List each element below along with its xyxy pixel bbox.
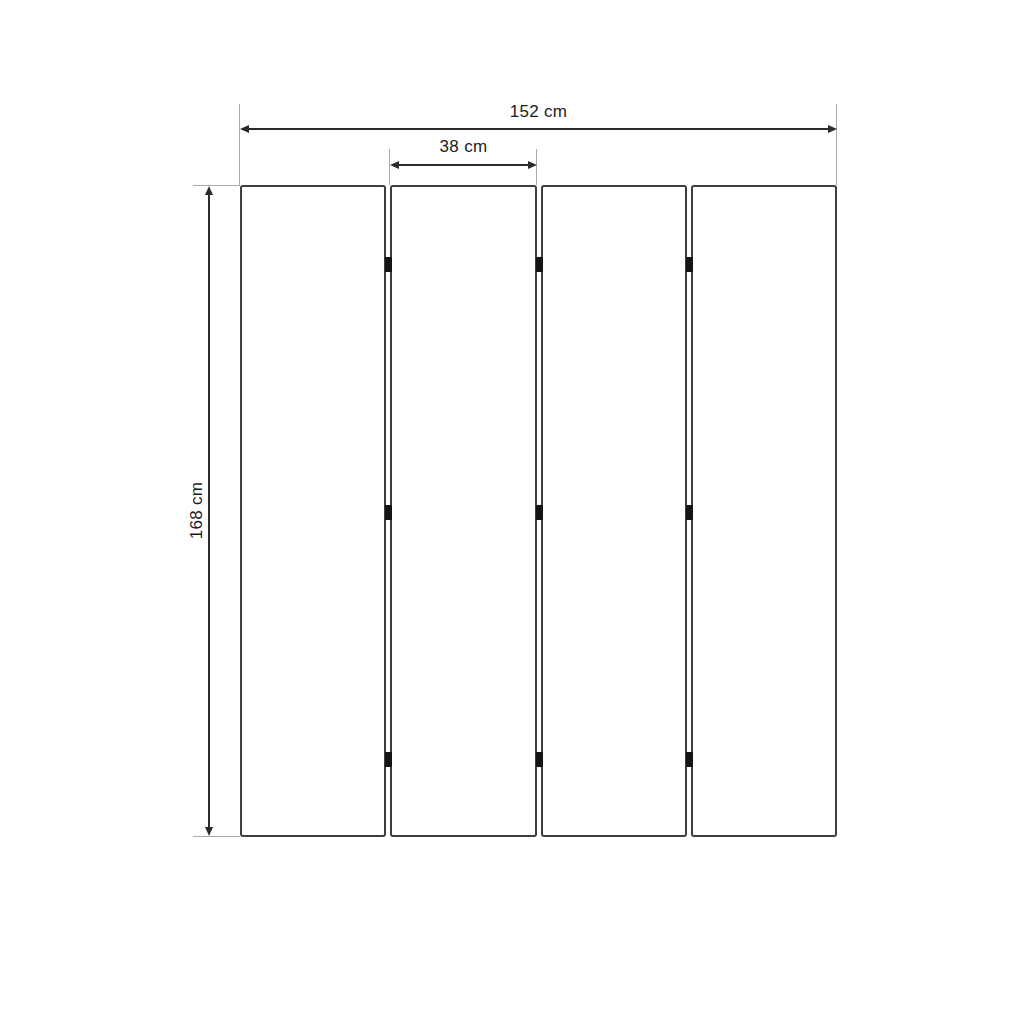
arrowhead-panel-left-icon [390, 161, 399, 169]
extension-line-height-bottom [193, 836, 240, 837]
hinge-gap3-middle [686, 505, 693, 520]
hinge-gap1-bottom [385, 752, 392, 767]
extension-line-height-top [193, 185, 240, 186]
dimension-line-total-width [248, 128, 829, 130]
arrowhead-total-right-icon [828, 125, 837, 133]
dimension-line-height [208, 194, 210, 827]
hinge-gap1-middle [385, 505, 392, 520]
panel-2 [390, 185, 537, 837]
arrowhead-height-bottom-icon [205, 827, 213, 836]
hinge-gap2-bottom [536, 752, 543, 767]
dimension-diagram: 152 cm 38 cm 168 cm [0, 0, 1024, 1024]
height-label: 168 cm [186, 461, 207, 561]
panel-width-label: 38 cm [390, 136, 537, 157]
panel-1 [240, 185, 386, 837]
hinge-gap3-bottom [686, 752, 693, 767]
arrowhead-panel-right-icon [528, 161, 537, 169]
arrowhead-total-left-icon [240, 125, 249, 133]
panel-4 [691, 185, 837, 837]
hinge-gap2-top [536, 257, 543, 272]
hinge-gap2-middle [536, 505, 543, 520]
arrowhead-height-top-icon [205, 186, 213, 195]
panel-3 [541, 185, 687, 837]
total-width-label: 152 cm [240, 101, 837, 122]
dimension-line-panel-width [398, 164, 529, 166]
hinge-gap3-top [686, 257, 693, 272]
hinge-gap1-top [385, 257, 392, 272]
